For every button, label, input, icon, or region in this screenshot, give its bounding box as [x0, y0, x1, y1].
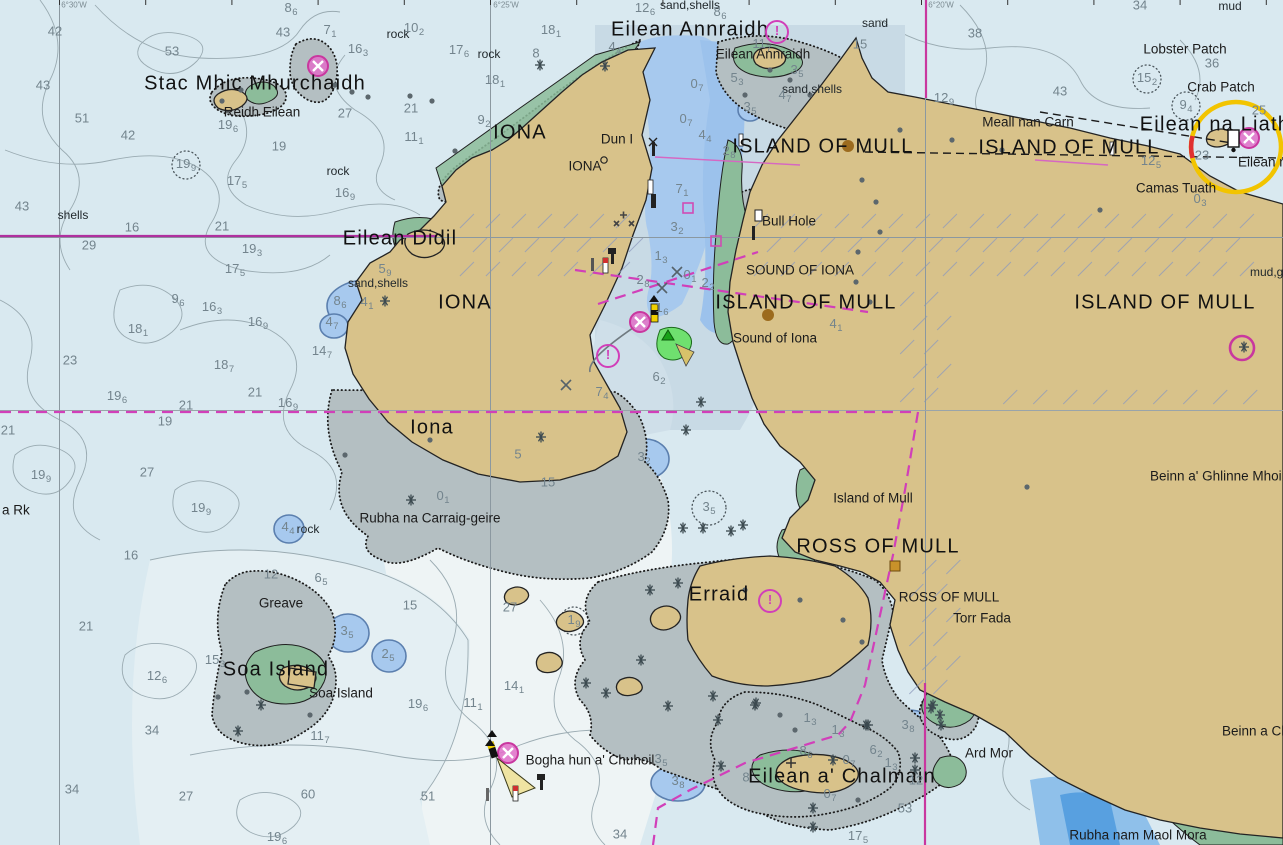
- chart-basemap: [0, 0, 1283, 845]
- islet-dot: [429, 98, 434, 103]
- caution-symbol[interactable]: !: [758, 589, 782, 613]
- islet-dot: [219, 98, 224, 103]
- islet-dot: [742, 92, 747, 97]
- caution-symbol[interactable]: !: [596, 344, 620, 368]
- islet-dot: [452, 148, 457, 153]
- islet-dot: [949, 137, 954, 142]
- islet-dot: [307, 712, 312, 717]
- caution-symbol[interactable]: !: [765, 20, 789, 44]
- islet-dot: [867, 299, 872, 304]
- islet-dot: [787, 77, 792, 82]
- islet-dot: [859, 639, 864, 644]
- islet-dot: [407, 93, 412, 98]
- islet-dot: [840, 617, 845, 622]
- islet-dot: [427, 437, 432, 442]
- islet-dot: [807, 92, 812, 97]
- building-square: [890, 561, 900, 571]
- islet-dot: [244, 689, 249, 694]
- islet-dot: [1024, 484, 1029, 489]
- islet-dot: [767, 67, 772, 72]
- islet-dot: [332, 82, 337, 87]
- islet-dot: [797, 597, 802, 602]
- islet-dot: [855, 797, 860, 802]
- islet-dot: [873, 199, 878, 204]
- islet-dot: [349, 89, 354, 94]
- islet-dot: [777, 712, 782, 717]
- islet-dot: [742, 587, 747, 592]
- nautical-chart-viewport[interactable]: Stac Mhic MhurchaidhEilean AnnraidhIONAI…: [0, 0, 1283, 845]
- summit-dot: [842, 140, 854, 152]
- red-sector-arc: [1191, 136, 1192, 158]
- islet-dot: [877, 229, 882, 234]
- islet-dot: [238, 87, 243, 92]
- islet-dot: [859, 177, 864, 182]
- islet-dot: [853, 279, 858, 284]
- islet-dot: [215, 694, 220, 699]
- islet-dot: [1097, 207, 1102, 212]
- islet-dot: [897, 127, 902, 132]
- summit-dot: [762, 309, 774, 321]
- islet-dot: [855, 249, 860, 254]
- islet-dot: [792, 727, 797, 732]
- islet-dot: [999, 147, 1004, 152]
- islet-dot: [342, 452, 347, 457]
- islet-dot: [365, 94, 370, 99]
